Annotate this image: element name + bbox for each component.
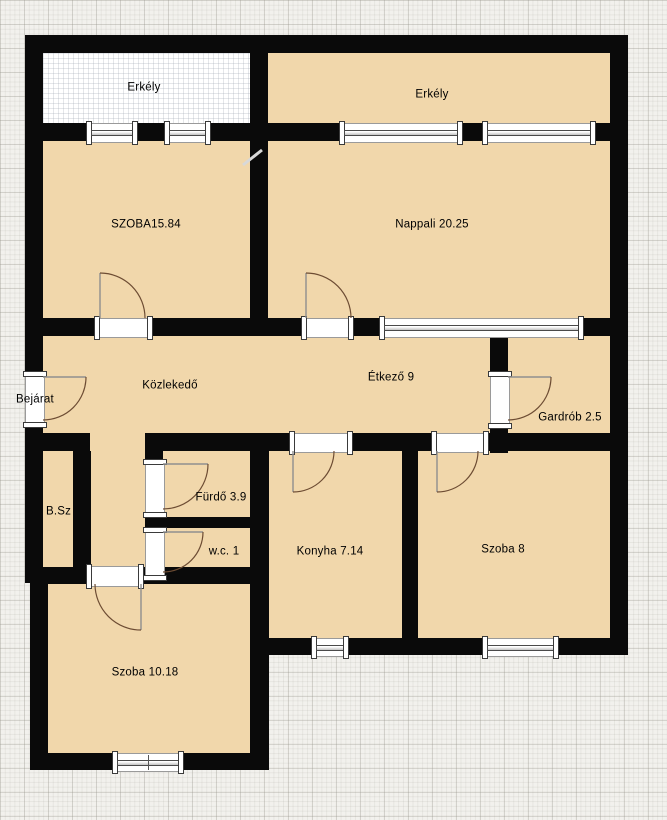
wall bbox=[163, 517, 250, 528]
room-label-konyha: Konyha 7.14 bbox=[297, 546, 364, 559]
wall bbox=[137, 123, 165, 141]
wall bbox=[43, 567, 87, 584]
room-label-erkely-right: Erkély bbox=[415, 89, 448, 102]
wall bbox=[183, 753, 268, 770]
wall bbox=[583, 318, 610, 336]
wall bbox=[73, 451, 91, 567]
room-label-szoba-nagy: SZOBA15.84 bbox=[111, 219, 181, 232]
wall bbox=[352, 433, 432, 451]
window-glass bbox=[316, 645, 344, 651]
window-glass bbox=[384, 325, 579, 331]
door-konyha bbox=[290, 433, 352, 453]
window bbox=[165, 123, 210, 143]
floor-plan-canvas[interactable]: Erkély Erkély SZOBA15.84 Nappali 20.25 K… bbox=[0, 0, 667, 820]
wall bbox=[595, 123, 610, 141]
window-divider bbox=[148, 755, 149, 770]
window-glass bbox=[487, 645, 554, 651]
room-label-furdo: Fürdő 3.9 bbox=[195, 492, 246, 505]
room-floor-corridor-lower[interactable] bbox=[90, 433, 145, 567]
door-furdo bbox=[145, 460, 165, 517]
wall bbox=[152, 318, 302, 336]
room-floor-kozlekedo-etkezo[interactable] bbox=[43, 336, 490, 433]
wall bbox=[250, 141, 268, 336]
door-gardrob bbox=[490, 372, 510, 428]
wall bbox=[250, 433, 269, 770]
wall bbox=[402, 451, 418, 638]
wall bbox=[210, 123, 340, 141]
room-label-kozlekedo: Közlekedő bbox=[142, 380, 198, 393]
room-label-etkezo: Étkező 9 bbox=[368, 372, 414, 385]
room-floor-konyha[interactable] bbox=[268, 451, 402, 638]
wall bbox=[488, 433, 628, 451]
window bbox=[113, 753, 183, 772]
window bbox=[340, 123, 462, 143]
door-nappali bbox=[302, 318, 353, 338]
room-label-szoba8: Szoba 8 bbox=[481, 544, 525, 557]
door-wc bbox=[145, 528, 165, 580]
entrance-label: Bejárat bbox=[16, 394, 54, 407]
room-label-wc: w.c. 1 bbox=[209, 546, 240, 559]
window-glass bbox=[487, 130, 591, 136]
window-glass bbox=[169, 130, 206, 136]
wall bbox=[348, 638, 483, 655]
wall bbox=[30, 753, 113, 770]
room-label-nappali: Nappali 20.25 bbox=[395, 219, 469, 232]
room-label-szoba10: Szoba 10.18 bbox=[112, 667, 179, 680]
wall bbox=[558, 638, 628, 655]
wall bbox=[25, 35, 43, 583]
wall bbox=[43, 433, 90, 451]
wall bbox=[353, 318, 380, 336]
window bbox=[483, 123, 595, 143]
wall bbox=[462, 123, 483, 141]
wall bbox=[25, 35, 628, 53]
wall bbox=[490, 336, 508, 372]
door-szoba10 bbox=[87, 566, 143, 587]
room-label-gardrob: Gardrób 2.5 bbox=[538, 412, 602, 425]
door-szoba-nagy bbox=[95, 318, 152, 338]
room-floor-furdo[interactable] bbox=[163, 451, 250, 517]
wall bbox=[250, 53, 268, 123]
window bbox=[87, 123, 137, 143]
window-glass bbox=[344, 130, 458, 136]
window bbox=[380, 318, 583, 338]
window bbox=[483, 638, 558, 657]
window-glass bbox=[91, 130, 133, 136]
wall bbox=[43, 318, 95, 336]
window bbox=[312, 638, 348, 657]
door-szoba8 bbox=[432, 433, 488, 453]
wall bbox=[250, 638, 312, 655]
wall bbox=[30, 583, 48, 770]
room-label-erkely-left: Erkély bbox=[127, 82, 160, 95]
wall bbox=[43, 123, 87, 141]
room-label-bsz: B.Sz bbox=[46, 506, 71, 519]
wall bbox=[610, 35, 628, 655]
